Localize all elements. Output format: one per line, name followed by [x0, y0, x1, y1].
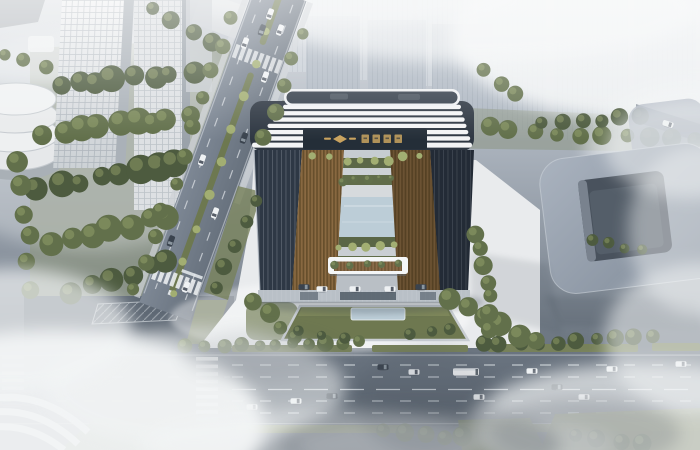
- tree-highlight: [405, 329, 410, 334]
- tree-highlight: [475, 242, 482, 249]
- tree-highlight: [588, 235, 593, 240]
- tree-highlight: [445, 324, 450, 329]
- tree-canopy: [153, 203, 169, 219]
- tree-highlight: [396, 260, 399, 263]
- tree-canopy: [308, 152, 315, 159]
- tree-canopy: [39, 232, 63, 256]
- tree-canopy: [170, 290, 177, 297]
- tree-canopy: [391, 241, 398, 248]
- tree-canopy: [70, 175, 88, 193]
- car: [526, 368, 538, 374]
- tree-canopy: [217, 157, 226, 166]
- tree-highlight: [212, 283, 218, 289]
- tree-canopy: [620, 244, 630, 254]
- tree-highlight: [111, 165, 121, 175]
- tree-canopy: [427, 326, 437, 336]
- tree-canopy: [21, 226, 40, 245]
- tree-highlight: [157, 252, 167, 262]
- tree-canopy: [364, 175, 373, 184]
- tree-canopy: [99, 268, 123, 292]
- tree-canopy: [228, 239, 242, 253]
- tree-highlight: [341, 334, 346, 339]
- tree-highlight: [604, 238, 609, 243]
- tree-canopy: [357, 157, 364, 164]
- tree-highlight: [9, 153, 19, 163]
- courtyard-glass-atrium: [339, 197, 395, 237]
- tree-highlight: [52, 173, 64, 185]
- tree-canopy: [508, 325, 531, 348]
- dark-smoke: [182, 330, 342, 382]
- tree-canopy: [215, 258, 232, 275]
- tree-canopy: [346, 262, 354, 270]
- tree-canopy: [395, 260, 402, 267]
- tree-canopy: [18, 253, 35, 270]
- tree-canopy: [490, 336, 507, 353]
- tree-highlight: [295, 327, 300, 332]
- tree-highlight: [351, 176, 354, 179]
- tree-highlight: [331, 262, 335, 266]
- aerial-render-canvas: [0, 0, 700, 450]
- tree-highlight: [478, 337, 485, 344]
- tree-canopy: [119, 215, 145, 241]
- tree-canopy: [388, 175, 394, 181]
- tree-canopy: [587, 234, 599, 246]
- tree-highlight: [262, 305, 271, 314]
- tree-highlight: [476, 258, 485, 267]
- tree-highlight: [389, 176, 392, 179]
- tree-canopy: [260, 303, 280, 323]
- tree-highlight: [511, 327, 521, 337]
- tree-canopy: [154, 249, 177, 272]
- tree-canopy: [444, 323, 456, 335]
- tree-canopy: [210, 281, 223, 294]
- tree-highlight: [83, 226, 94, 237]
- tree-canopy: [326, 153, 332, 159]
- tree-canopy: [480, 304, 499, 323]
- tree-canopy: [127, 283, 139, 295]
- tree-canopy: [204, 190, 214, 200]
- tree-canopy: [348, 242, 357, 251]
- car: [316, 286, 328, 292]
- tree-canopy: [473, 241, 488, 256]
- tree-highlight: [379, 262, 382, 265]
- tree-canopy: [138, 255, 154, 271]
- tree-highlight: [569, 334, 577, 342]
- tree-canopy: [6, 151, 28, 173]
- tree-canopy: [361, 243, 370, 252]
- tree-canopy: [483, 289, 497, 303]
- tree-canopy: [474, 256, 493, 275]
- tree-canopy: [416, 153, 422, 159]
- tree-highlight: [73, 176, 81, 184]
- tree-highlight: [428, 327, 433, 332]
- tree-highlight: [179, 150, 186, 157]
- tree-canopy: [250, 195, 262, 207]
- tree-highlight: [143, 210, 152, 219]
- tree-canopy: [527, 332, 545, 350]
- tree-highlight: [155, 204, 162, 211]
- tree-highlight: [148, 155, 161, 168]
- tree-canopy: [148, 229, 163, 244]
- tree-canopy: [353, 335, 365, 347]
- tree-highlight: [339, 178, 343, 182]
- tree-canopy: [591, 333, 603, 345]
- tree-canopy: [364, 260, 371, 267]
- entrance-glass: [300, 292, 318, 300]
- tree-highlight: [217, 260, 225, 268]
- tree-canopy: [459, 297, 478, 316]
- tree-canopy: [339, 332, 350, 343]
- tree-highlight: [377, 175, 380, 178]
- tree-canopy: [378, 261, 385, 268]
- tree-canopy: [376, 241, 385, 250]
- tree-highlight: [529, 334, 537, 342]
- tree-highlight: [17, 207, 25, 215]
- tree-highlight: [95, 169, 103, 177]
- tree-canopy: [567, 332, 584, 349]
- tree-highlight: [318, 332, 322, 336]
- tree-highlight: [99, 217, 111, 229]
- tree-highlight: [23, 228, 31, 236]
- tree-highlight: [355, 336, 360, 341]
- tree-canopy: [10, 175, 31, 196]
- tree-highlight: [492, 338, 499, 345]
- tree-highlight: [130, 158, 143, 171]
- tree-highlight: [128, 284, 134, 290]
- tree-canopy: [330, 261, 339, 270]
- car: [349, 286, 361, 292]
- tree-canopy: [376, 175, 382, 181]
- tree-highlight: [172, 179, 178, 185]
- tree-highlight: [163, 152, 176, 165]
- tree-canopy: [336, 245, 342, 251]
- tree-highlight: [365, 261, 368, 264]
- tree-canopy: [338, 178, 347, 187]
- tree-highlight: [65, 230, 75, 240]
- tree-highlight: [13, 177, 22, 186]
- tree-highlight: [126, 268, 135, 277]
- tree-highlight: [20, 254, 28, 262]
- tree-highlight: [42, 235, 53, 246]
- tree-canopy: [177, 149, 193, 165]
- tree-highlight: [485, 290, 491, 296]
- tree-highlight: [347, 263, 350, 266]
- car: [415, 284, 427, 290]
- tree-canopy: [15, 206, 33, 224]
- tree-highlight: [621, 245, 625, 249]
- tree-canopy: [439, 288, 461, 310]
- tree-canopy: [95, 215, 122, 242]
- tree-canopy: [193, 225, 201, 233]
- tree-canopy: [384, 156, 394, 166]
- tree-highlight: [102, 270, 113, 281]
- tree-canopy: [240, 215, 253, 228]
- tree-canopy: [551, 336, 566, 351]
- tree-highlight: [150, 231, 157, 238]
- tree-highlight: [252, 196, 257, 201]
- tree-highlight: [461, 299, 470, 308]
- tree-highlight: [365, 176, 369, 180]
- aerial-render-stage: [0, 0, 700, 450]
- tree-highlight: [469, 227, 477, 235]
- tree-highlight: [441, 290, 451, 300]
- tree-canopy: [481, 321, 498, 338]
- tree-highlight: [593, 334, 598, 339]
- tree-canopy: [404, 328, 416, 340]
- tree-canopy: [178, 257, 186, 265]
- tree-canopy: [62, 228, 83, 249]
- tree-canopy: [123, 266, 143, 286]
- tree-canopy: [480, 275, 496, 291]
- entrance-glass: [420, 292, 436, 300]
- tree-highlight: [482, 277, 489, 284]
- tree-highlight: [122, 217, 133, 228]
- tree-canopy: [244, 293, 262, 311]
- entrance-glass: [340, 292, 396, 300]
- car: [384, 286, 396, 292]
- tree-highlight: [230, 241, 236, 247]
- tree-highlight: [483, 323, 491, 331]
- tree-canopy: [344, 158, 352, 166]
- tree-highlight: [140, 256, 147, 263]
- tree-highlight: [246, 295, 254, 303]
- tree-canopy: [351, 176, 358, 183]
- tree-highlight: [553, 338, 560, 345]
- car: [298, 284, 310, 290]
- tree-canopy: [170, 178, 183, 191]
- tree-canopy: [466, 226, 484, 244]
- tree-canopy: [398, 152, 408, 162]
- tree-highlight: [482, 306, 490, 314]
- top-haze: [0, 0, 700, 140]
- tree-canopy: [603, 237, 614, 248]
- tree-canopy: [371, 157, 379, 165]
- tree-highlight: [242, 217, 248, 223]
- tree-highlight: [275, 322, 281, 328]
